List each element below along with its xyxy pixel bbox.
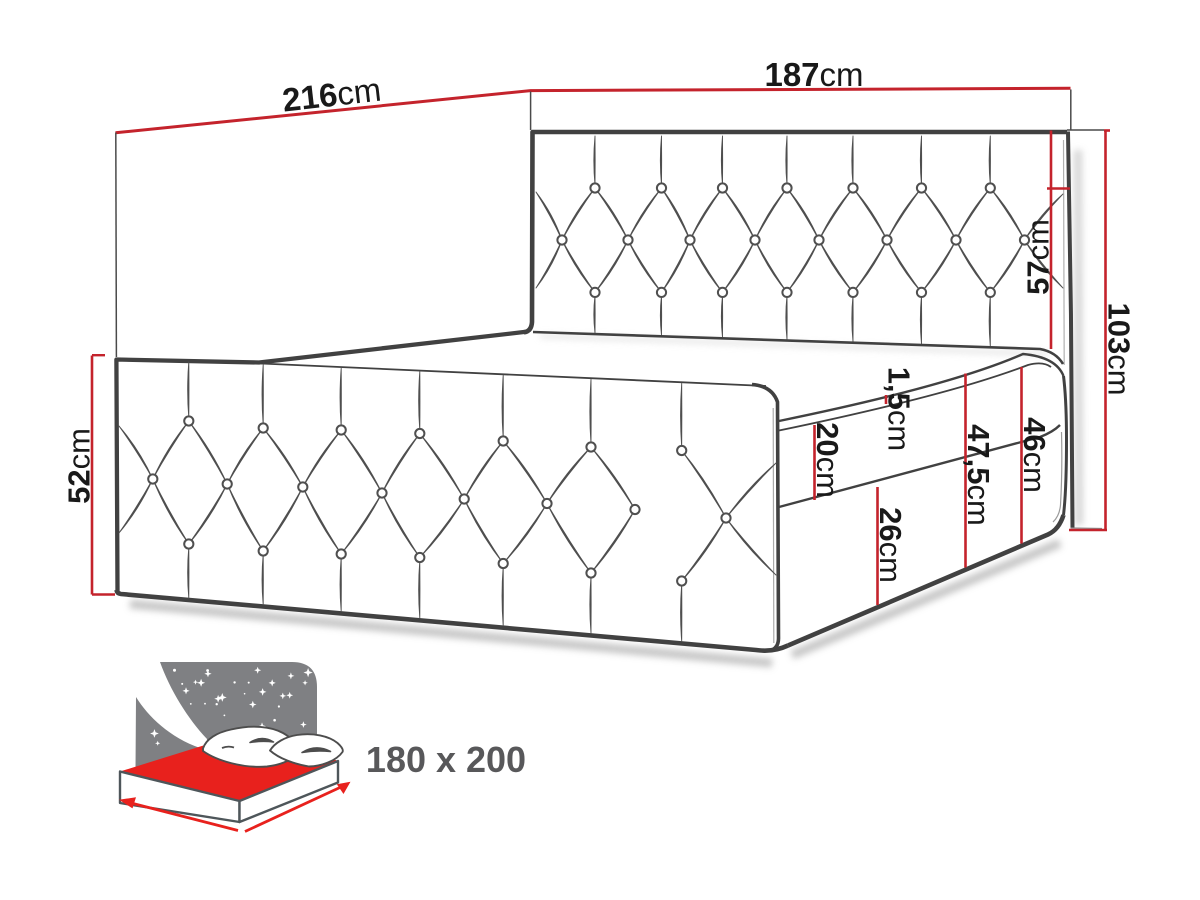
svg-text:103cm: 103cm: [1102, 302, 1137, 395]
svg-text:47,5cm: 47,5cm: [961, 424, 996, 526]
svg-text:46cm: 46cm: [1017, 417, 1052, 493]
svg-text:20cm: 20cm: [810, 422, 845, 498]
svg-text:57cm: 57cm: [1021, 219, 1056, 295]
svg-text:1,5cm: 1,5cm: [882, 367, 917, 451]
svg-text:187cm: 187cm: [764, 56, 863, 93]
svg-text:180 x 200: 180 x 200: [366, 739, 526, 780]
svg-text:52cm: 52cm: [62, 428, 97, 504]
svg-text:26cm: 26cm: [873, 507, 908, 583]
